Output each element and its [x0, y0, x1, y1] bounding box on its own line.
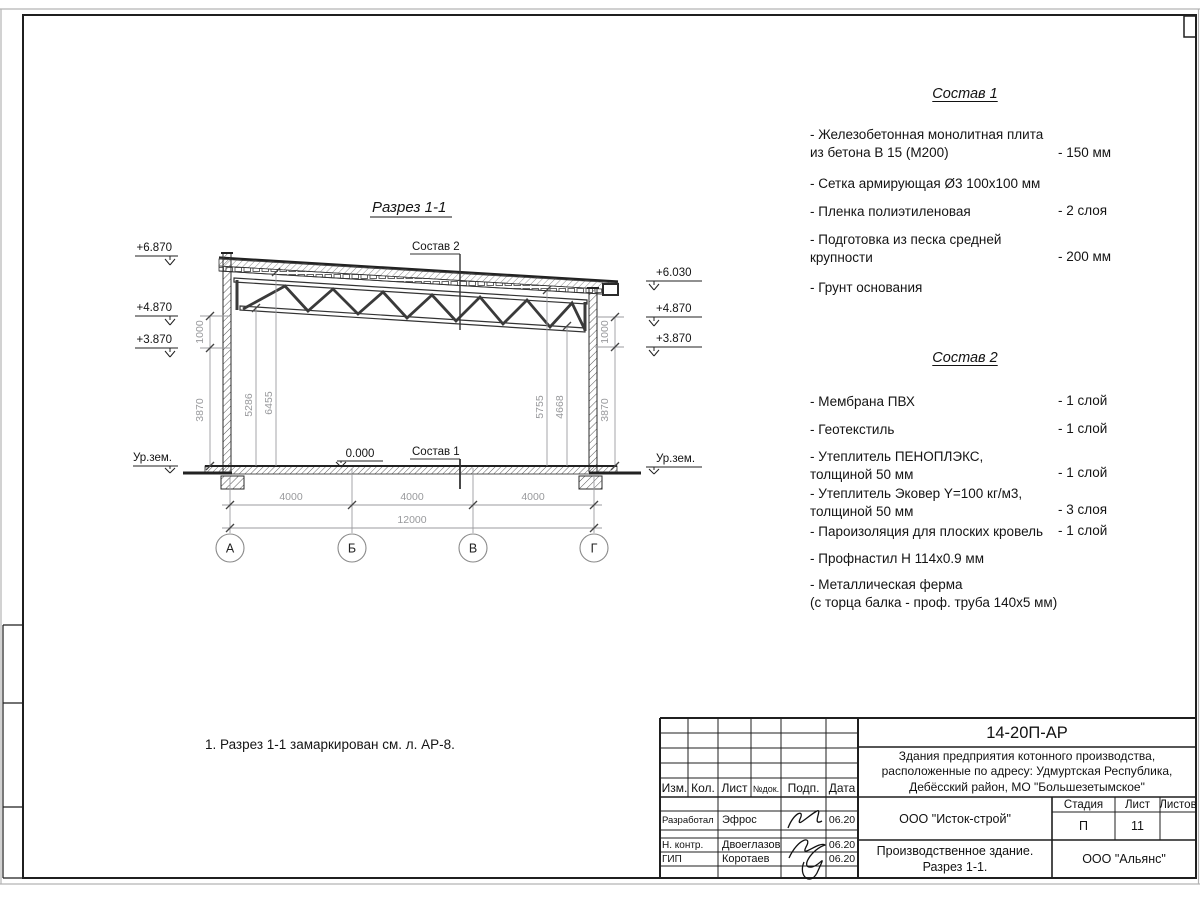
footing-left: [221, 476, 244, 489]
axis-bubbles: А Б В Г: [216, 534, 608, 562]
dimension-labels: 1000 3870 1000 3870 5286 6455 5755 4668 …: [194, 320, 611, 526]
row-name: Двоеглазов: [722, 838, 782, 852]
top-right-box: [1184, 16, 1196, 37]
spec1-title: Состав 1: [805, 86, 1125, 102]
section-title: Разрез 1-1: [372, 199, 446, 216]
spec2-item-value: - 1 слой: [1058, 523, 1107, 538]
spec2-item-value: - 1 слой: [1058, 421, 1107, 436]
spec1-item-text: - Сетка армирующая Ø3 100х100 мм: [810, 175, 1040, 193]
spec1-item-value: - 150 мм: [1058, 145, 1111, 160]
dim-span-2: 4000: [400, 491, 424, 503]
col-podp: Подп.: [781, 780, 826, 795]
spec2-item-text: - Геотекстиль: [810, 421, 894, 439]
axis-v: В: [469, 542, 477, 556]
stage-value: П: [1052, 814, 1115, 838]
dim-1000-left: 1000: [194, 320, 206, 344]
right-wall: [589, 288, 597, 472]
elev-left-6870: +6.870: [137, 242, 173, 254]
spec2-item-text: - Металлическая ферма (с торца балка - п…: [810, 576, 1057, 611]
spec1-item-text: - Грунт основания: [810, 279, 922, 297]
spec1-item-text: - Пленка полиэтиленовая: [810, 203, 971, 221]
dim-6455: 6455: [263, 391, 275, 415]
col-izm: Изм.: [661, 780, 688, 795]
row-date: 06.20: [826, 852, 858, 866]
elev-right-3870: +3.870: [656, 333, 692, 345]
ground-label-right: Ур.зем.: [656, 453, 695, 465]
floor-slab: [183, 466, 641, 489]
spec2-item-text: - Утеплитель Эковер Y=100 кг/м3, толщино…: [810, 485, 1022, 520]
spec2-item-value: - 3 слоя: [1058, 502, 1107, 517]
spec2-item-value: - 1 слой: [1058, 465, 1107, 480]
signature-developer: [788, 811, 822, 828]
spec2-item-value: - 1 слой: [1058, 393, 1107, 408]
spec2-item-text: - Мембрана ПВХ: [810, 393, 915, 411]
object-name: Производственное здание. Разрез 1-1.: [858, 842, 1052, 876]
spec2-title: Состав 2: [805, 350, 1125, 366]
signature-control: [789, 840, 825, 879]
row-date: 06.20: [826, 838, 858, 852]
sheet-label: Лист: [1115, 798, 1160, 812]
col-ndok: №док.: [751, 782, 781, 795]
sostav1-callout: Состав 1: [412, 446, 460, 458]
callouts: Разрез 1-1 Состав 2 Состав 1: [370, 199, 460, 489]
ground-label-left: Ур.зем.: [133, 452, 172, 464]
sheet-note: 1. Разрез 1-1 замаркирован см. л. АР-8.: [205, 737, 455, 752]
footing-right: [579, 476, 602, 489]
spec2-item-text: - Профнастил Н 114х0.9 мм: [810, 550, 984, 568]
row-role: Разработал: [662, 813, 718, 827]
elev-left-3870: +3.870: [137, 334, 173, 346]
org1: ООО "Исток-строй": [858, 799, 1052, 838]
dim-span-3: 4000: [521, 491, 545, 503]
axis-a: А: [226, 542, 235, 556]
dim-3870-left: 3870: [194, 398, 206, 422]
dim-4668: 4668: [554, 395, 566, 419]
zero-level-label: 0.000: [346, 448, 375, 460]
stage-label: Стадия: [1052, 798, 1115, 812]
dim-5286: 5286: [243, 393, 255, 417]
section-drawing: 1000 3870 1000 3870 5286 6455 5755 4668 …: [133, 199, 702, 562]
dim-1000-right: 1000: [599, 320, 611, 344]
row-date: 06.20: [826, 812, 858, 827]
elev-right-4870: +4.870: [656, 303, 692, 315]
dim-3870-right: 3870: [599, 398, 611, 422]
col-data: Дата: [826, 780, 858, 795]
sheet-number: 11: [1115, 814, 1160, 838]
sheets-label: Листов: [1160, 798, 1196, 812]
elev-arrow: [165, 256, 175, 473]
dim-span-1: 4000: [279, 491, 303, 503]
doc-number: 14-20П-АР: [860, 720, 1194, 746]
project-description: Здания предприятия котонного производств…: [860, 749, 1194, 795]
row-role: ГИП: [662, 853, 718, 866]
spec2-item-text: - Утеплитель ПЕНОПЛЭКС, толщиной 50 мм: [810, 448, 983, 483]
col-kol: Кол.: [688, 780, 718, 795]
spec1-item-value: - 200 мм: [1058, 249, 1111, 264]
left-margin-boxes: [3, 625, 23, 878]
spec1-item-text: - Подготовка из песка средней крупности: [810, 231, 1001, 266]
org2: ООО "Альянс": [1052, 842, 1196, 876]
elev-right-6030: +6.030: [656, 267, 692, 279]
axis-g: Г: [591, 542, 598, 556]
left-wall: [223, 253, 231, 472]
spec1-item-text: - Железобетонная монолитная плита из бет…: [810, 126, 1043, 161]
row-role: Н. контр.: [662, 839, 718, 852]
drawing-sheet: 1000 3870 1000 3870 5286 6455 5755 4668 …: [0, 0, 1200, 900]
row-name: Эфрос: [722, 812, 780, 827]
elev-left-4870: +4.870: [137, 302, 173, 314]
col-list: Лист: [718, 780, 751, 795]
axis-b: Б: [348, 542, 356, 556]
sostav2-callout: Состав 2: [412, 241, 460, 253]
signatures: [788, 811, 825, 879]
dim-5755: 5755: [534, 395, 546, 419]
dim-total-12000: 12000: [397, 514, 426, 526]
spec2-item-text: - Пароизоляция для плоских кровель: [810, 523, 1043, 541]
roof-end-beam: [603, 284, 618, 295]
row-name: Коротаев: [722, 852, 782, 866]
spec1-item-value: - 2 слоя: [1058, 203, 1107, 218]
